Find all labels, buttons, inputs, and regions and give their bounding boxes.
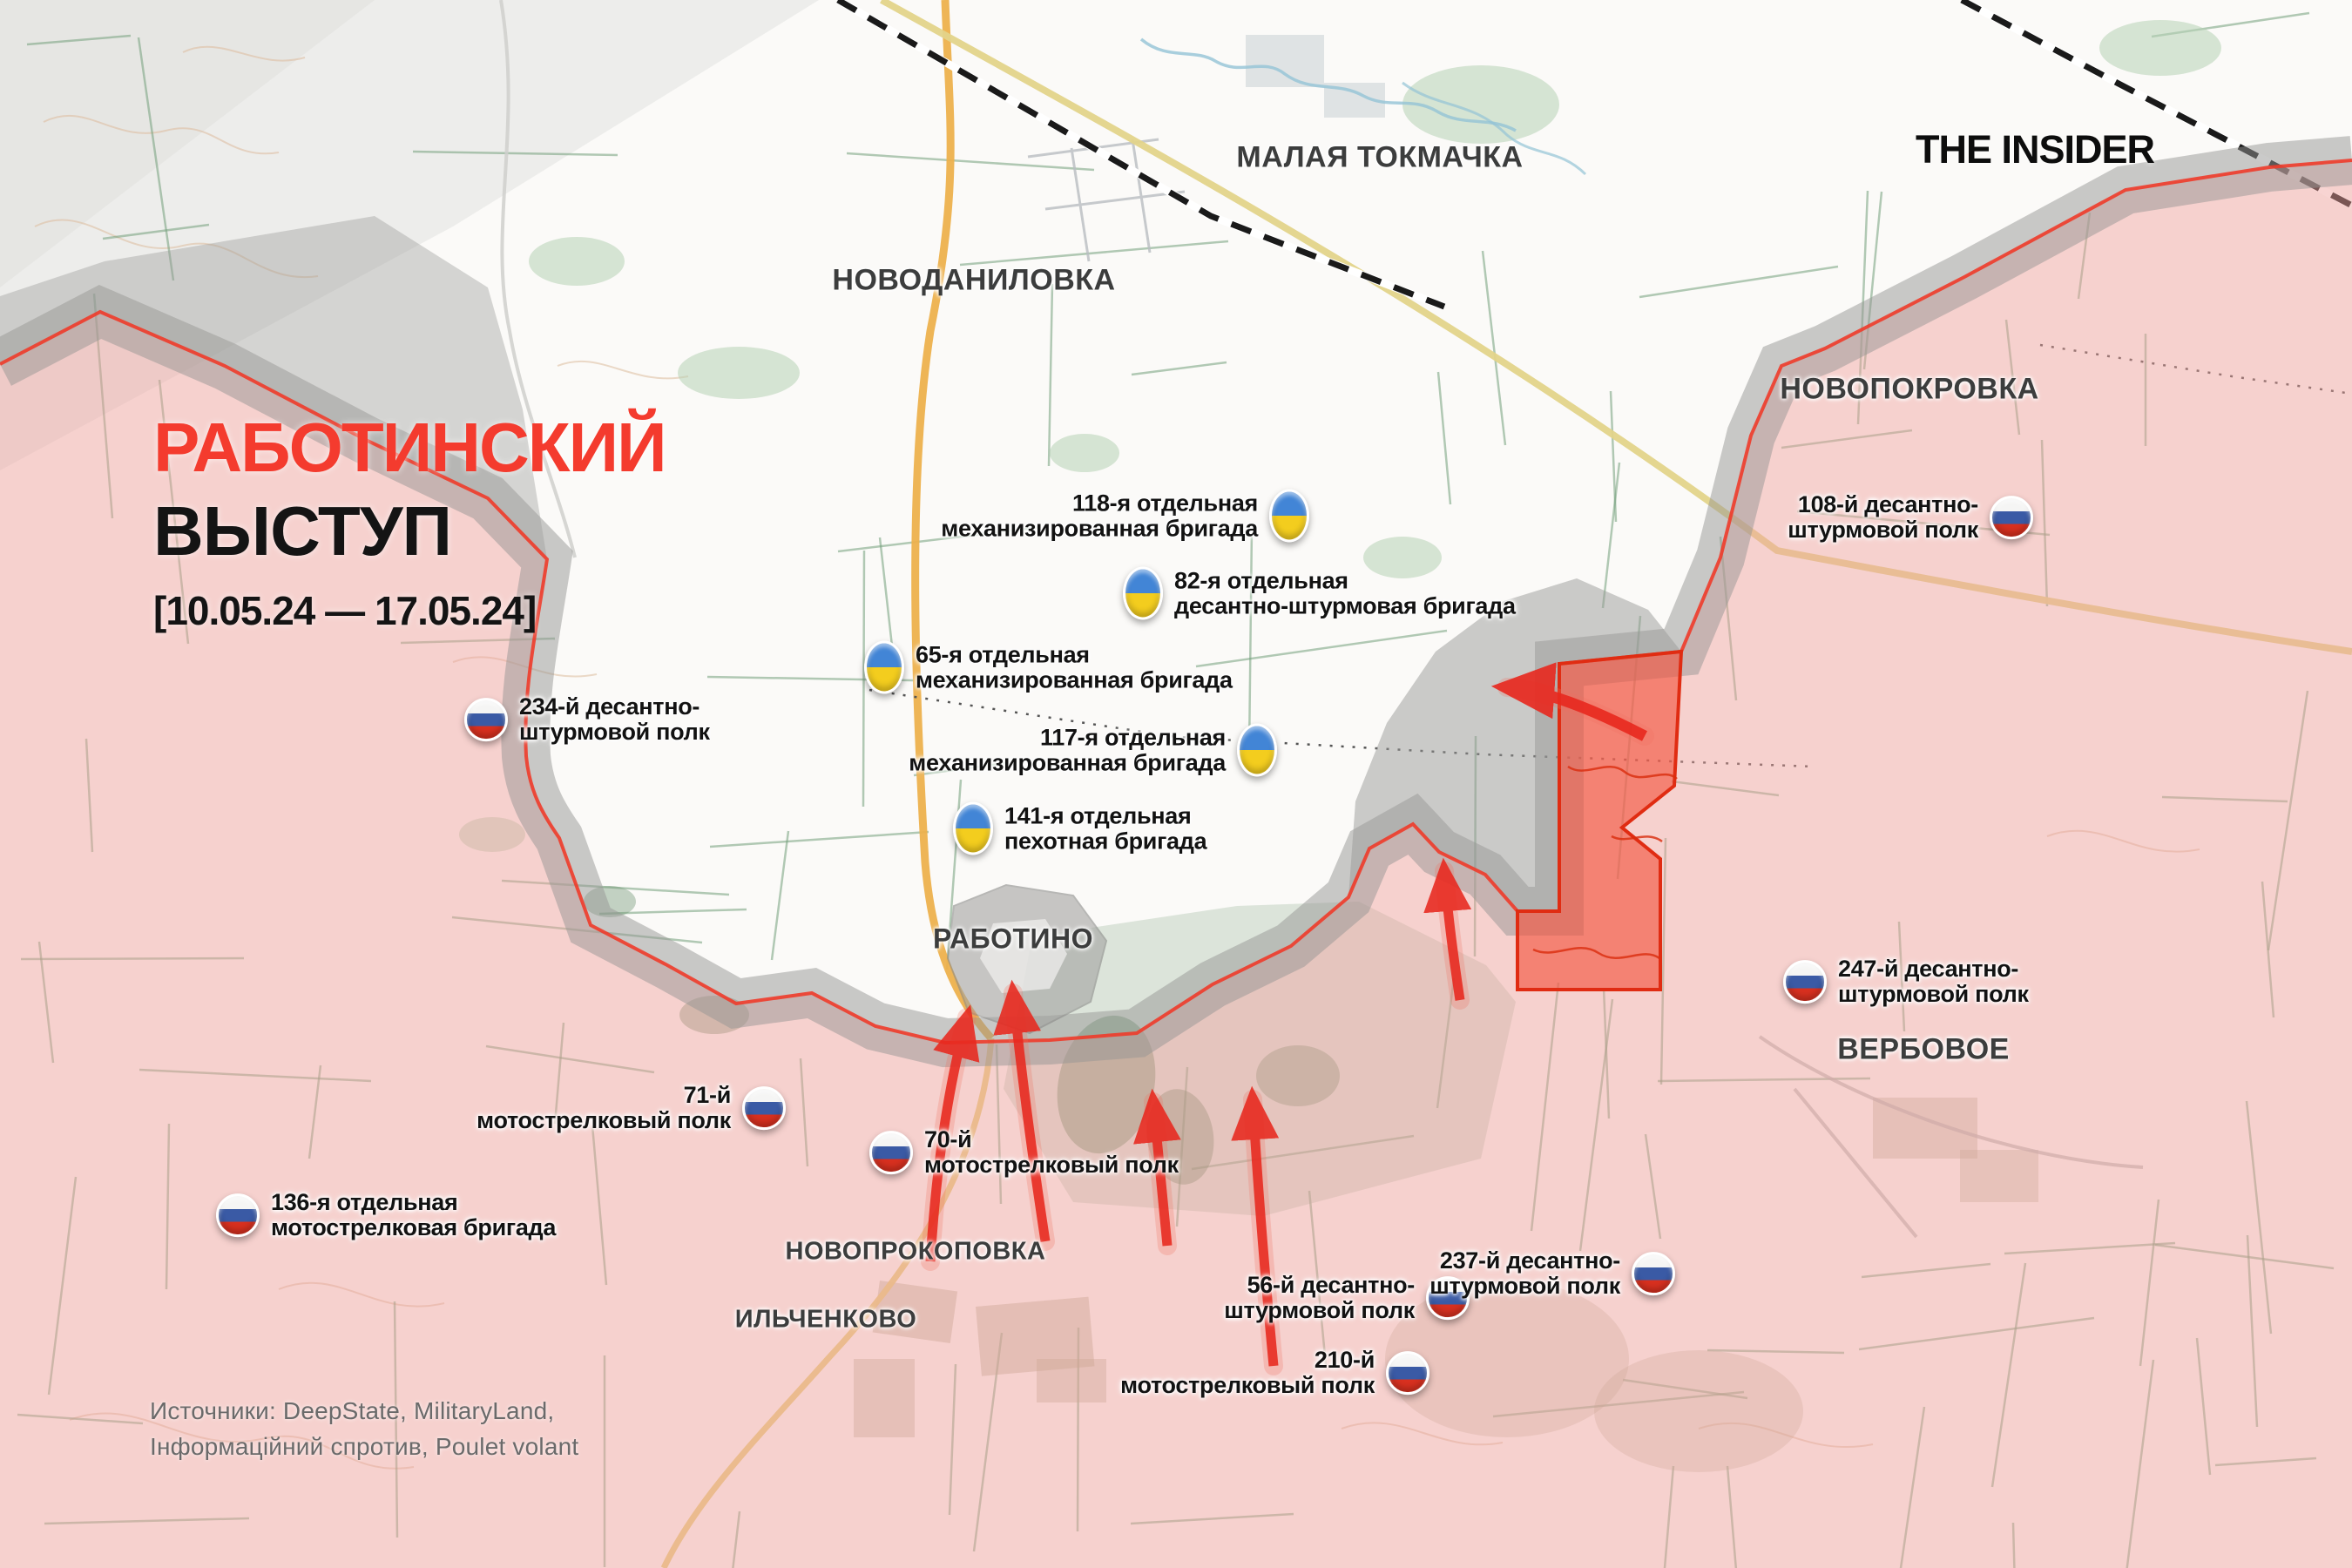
unit-label-ru-108: 108-й десантно-штурмовой полк [1788, 492, 2033, 543]
the-insider-logo: THE INSIDER [1916, 127, 2154, 172]
russia-flag-icon [1632, 1252, 1675, 1295]
russia-flag-icon [869, 1131, 913, 1174]
town-label: НОВОПРОКОПОВКА [786, 1238, 1046, 1267]
map-title: РАБОТИНСКИЙ ВЫСТУП [10.05.24 — 17.05.24] [153, 413, 666, 631]
sources-line-1: Источники: DeepState, MilitaryLand, [150, 1394, 578, 1429]
unit-label-ua-82: 82-я отдельнаядесантно-штурмовая бригада [1123, 567, 1516, 620]
russia-flag-icon [216, 1193, 260, 1237]
unit-name: 70-ймотострелковый полк [924, 1127, 1179, 1178]
title-line-black: ВЫСТУП [153, 497, 666, 566]
unit-name: 56-й десантно-штурмовой полк [1224, 1273, 1415, 1323]
unit-name: 141-я отдельнаяпехотная бригада [1004, 803, 1206, 854]
ukraine-flag-icon [1269, 490, 1309, 543]
unit-label-ru-71: 71-ймотострелковый полк [476, 1083, 786, 1133]
unit-label-ru-237: 237-й десантно-штурмовой полк [1429, 1248, 1675, 1299]
unit-label-ua-65: 65-я отдельнаямеханизированная бригада [864, 641, 1233, 694]
ukraine-flag-icon [953, 802, 993, 855]
town-label: РАБОТИНО [933, 923, 1093, 956]
title-date-range: [10.05.24 — 17.05.24] [153, 591, 666, 631]
unit-name: 65-я отдельнаямеханизированная бригада [916, 642, 1233, 693]
sources-note: Источники: DeepState, MilitaryLand, Інфо… [150, 1394, 578, 1464]
town-label: ВЕРБОВОЕ [1837, 1033, 2010, 1067]
ukraine-flag-icon [1237, 724, 1277, 777]
sources-line-2: Інформаційний спротив, Poulet volant [150, 1429, 578, 1465]
unit-label-ua-141: 141-я отдельнаяпехотная бригада [953, 802, 1206, 855]
russia-flag-icon [464, 698, 508, 741]
town-label: ИЛЬЧЕНКОВО [735, 1306, 917, 1335]
unit-name: 234-й десантно-штурмовой полк [519, 694, 710, 745]
ukraine-flag-icon [1123, 567, 1163, 620]
unit-label-ua-118: 118-я отдельнаямеханизированная бригада [941, 490, 1309, 543]
ukraine-flag-icon [864, 641, 904, 694]
unit-label-ru-234: 234-й десантно-штурмовой полк [464, 694, 710, 745]
unit-label-ua-117: 117-я отдельнаямеханизированная бригада [909, 724, 1277, 777]
unit-label-ru-136: 136-я отдельнаямотострелковая бригада [216, 1190, 556, 1240]
town-label: МАЛАЯ ТОКМАЧКА [1236, 141, 1523, 175]
russia-flag-icon [742, 1086, 786, 1130]
unit-label-ru-70: 70-ймотострелковый полк [869, 1127, 1179, 1178]
unit-name: 82-я отдельнаядесантно-штурмовая бригада [1174, 568, 1516, 618]
labels-overlay: РАБОТИНСКИЙ ВЫСТУП [10.05.24 — 17.05.24]… [0, 0, 2352, 1568]
unit-name: 71-ймотострелковый полк [476, 1083, 731, 1133]
town-label: НОВОДАНИЛОВКА [832, 264, 1115, 298]
russia-flag-icon [1783, 960, 1827, 1004]
unit-label-ru-210: 210-ймотострелковый полк [1120, 1348, 1429, 1398]
russia-flag-icon [1990, 496, 2033, 539]
unit-name: 247-й десантно-штурмовой полк [1838, 956, 2029, 1007]
town-label: НОВОПОКРОВКА [1780, 373, 2038, 407]
unit-name: 237-й десантно-штурмовой полк [1429, 1248, 1620, 1299]
map-canvas: РАБОТИНСКИЙ ВЫСТУП [10.05.24 — 17.05.24]… [0, 0, 2352, 1568]
unit-name: 136-я отдельнаямотострелковая бригада [271, 1190, 556, 1240]
unit-name: 210-ймотострелковый полк [1120, 1348, 1375, 1398]
russia-flag-icon [1386, 1351, 1429, 1395]
unit-name: 117-я отдельнаямеханизированная бригада [909, 725, 1226, 775]
unit-label-ru-247: 247-й десантно-штурмовой полк [1783, 956, 2029, 1007]
title-line-red: РАБОТИНСКИЙ [153, 413, 666, 483]
unit-name: 118-я отдельнаямеханизированная бригада [941, 490, 1258, 541]
unit-name: 108-й десантно-штурмовой полк [1788, 492, 1978, 543]
